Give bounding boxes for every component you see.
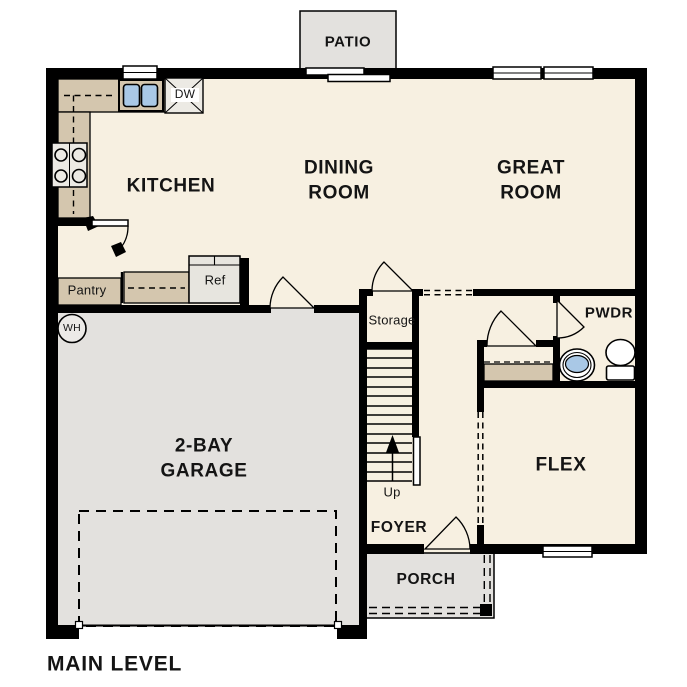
- wall: [635, 68, 647, 554]
- wall: [477, 340, 484, 388]
- sliding-door-panel: [328, 75, 390, 82]
- water-heater: [58, 315, 86, 343]
- floor-plan: PATIO KITCHEN DINING ROOM GREAT ROOM DW …: [0, 0, 687, 687]
- dishwasher-label-bg: [171, 88, 199, 102]
- wall: [314, 305, 366, 313]
- pantry-floor-strip: [58, 278, 121, 305]
- wall: [536, 340, 553, 347]
- toilet-tank: [607, 366, 635, 380]
- wall: [362, 289, 373, 296]
- floor-plan-svg: [0, 0, 687, 687]
- garage-door-end: [76, 622, 83, 629]
- door-pantry-leaf: [92, 220, 128, 226]
- wall: [473, 289, 647, 296]
- pwdr-sink-basin: [566, 356, 589, 373]
- wall: [46, 625, 79, 639]
- porch-post: [480, 604, 492, 616]
- wall: [240, 258, 249, 313]
- wall: [553, 336, 560, 388]
- toilet-bowl: [606, 340, 635, 366]
- patio-floor: [300, 11, 396, 75]
- wall: [359, 544, 424, 554]
- closet-shelf: [484, 364, 553, 381]
- wall: [359, 289, 367, 639]
- stair-handrail: [414, 437, 421, 485]
- water-heater-circle: [58, 315, 86, 343]
- wall: [412, 289, 423, 296]
- kitchen-sink-basin: [142, 85, 158, 107]
- wall: [477, 381, 647, 388]
- porch-floor: [365, 553, 494, 618]
- kitchen-sink-basin: [124, 85, 140, 107]
- wall: [477, 525, 484, 546]
- wall: [477, 388, 484, 412]
- garage-door-end: [335, 622, 342, 629]
- wall: [46, 305, 271, 313]
- garage-floor: [52, 305, 362, 627]
- wall: [412, 289, 419, 437]
- wall: [362, 342, 419, 349]
- closet: [484, 362, 553, 381]
